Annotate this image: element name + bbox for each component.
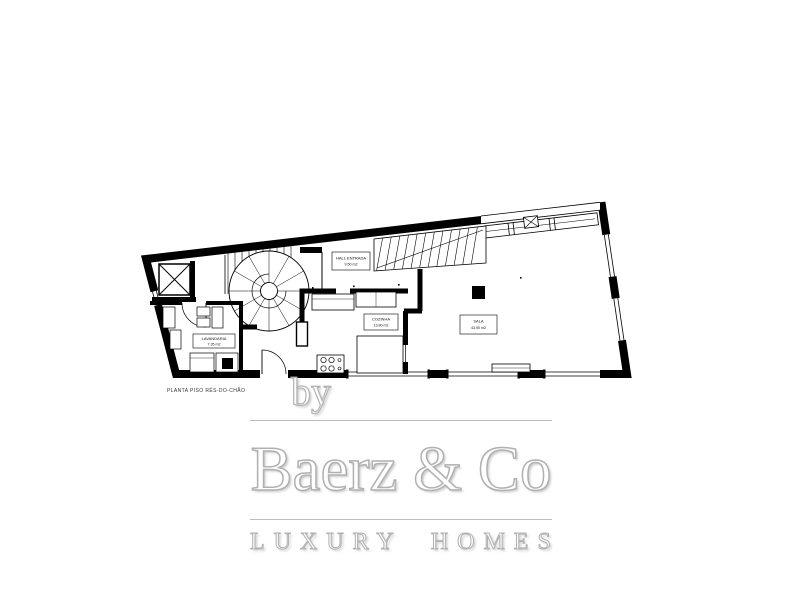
lavandaria-area: 7.35 m2: [208, 343, 221, 347]
lavandaria-name: LAVANDARIA: [202, 336, 227, 341]
room-label-lavandaria: LAVANDARIA 7.35 m2: [193, 334, 235, 348]
brand-name: Baerz & Co: [250, 421, 552, 519]
hall-area: 9.50 m2: [345, 263, 358, 267]
room-label-cozinha: COZINHA 13.80 m2: [364, 314, 398, 330]
pillar: [472, 286, 485, 299]
plan-caption: PLANTA PISO RÉS-DO-CHÃO: [167, 387, 245, 394]
room-label-sala: SALA 43.90 m2: [460, 315, 497, 334]
cozinha-name: COZINHA: [372, 317, 390, 322]
watermark-by: by: [291, 372, 331, 412]
cozinha-area: 13.80 m2: [374, 324, 389, 328]
sala-area: 43.90 m2: [471, 326, 486, 330]
elevator-shaft: [152, 261, 196, 300]
sala-name: SALA: [473, 319, 484, 324]
page: HALL ENTRADA 9.50 m2 COZINHA 13.80 m2 SA…: [0, 0, 800, 600]
watermark-block: Baerz & Co LUXURY HOMES: [250, 420, 552, 556]
brand-tagline: LUXURY HOMES: [250, 520, 552, 556]
hall-name: HALL ENTRADA: [336, 256, 366, 261]
room-label-hall: HALL ENTRADA 9.50 m2: [332, 252, 370, 270]
